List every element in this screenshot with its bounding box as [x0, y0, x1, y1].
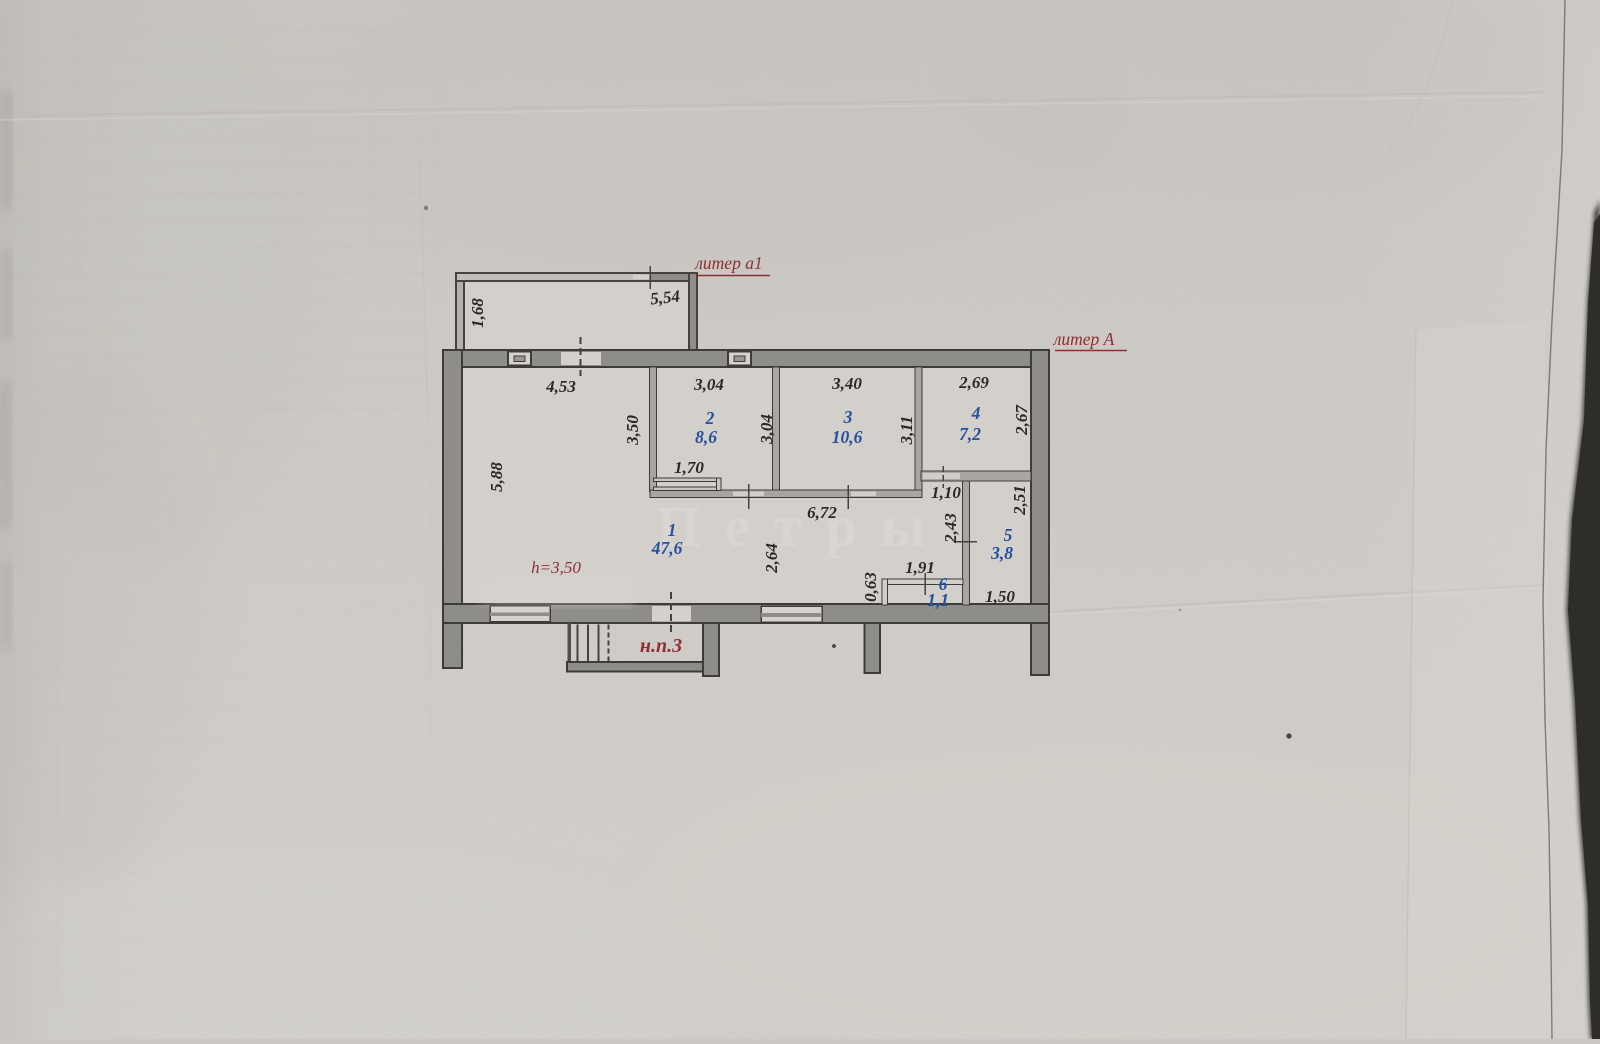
svg-text:h=3,50: h=3,50	[531, 558, 581, 577]
svg-text:2: 2	[705, 408, 715, 428]
svg-text:3,8: 3,8	[990, 543, 1013, 563]
svg-text:1,50: 1,50	[985, 587, 1015, 606]
svg-text:47,6: 47,6	[651, 538, 683, 558]
svg-text:3,04: 3,04	[757, 414, 776, 445]
svg-text:Петры: Петры	[656, 494, 949, 559]
svg-text:7,2: 7,2	[959, 424, 981, 444]
svg-text:6,72: 6,72	[807, 503, 837, 522]
svg-text:2,67: 2,67	[1012, 404, 1031, 436]
svg-text:3,04: 3,04	[693, 375, 724, 394]
svg-text:3,50: 3,50	[623, 415, 642, 446]
svg-text:5,54: 5,54	[649, 286, 681, 308]
svg-text:1,1: 1,1	[927, 590, 949, 610]
svg-text:4,53: 4,53	[545, 377, 576, 396]
svg-text:2,69: 2,69	[958, 373, 989, 392]
svg-text:1,70: 1,70	[674, 458, 704, 477]
svg-text:н.п.3: н.п.3	[640, 635, 682, 657]
svg-text:литер а1: литер а1	[694, 253, 762, 273]
svg-text:3: 3	[843, 407, 853, 427]
svg-text:2,64: 2,64	[762, 543, 781, 574]
svg-text:1,68: 1,68	[468, 298, 487, 328]
svg-text:5,88: 5,88	[487, 462, 506, 492]
svg-text:литер А: литер А	[1053, 329, 1115, 349]
svg-text:3,11: 3,11	[897, 416, 916, 446]
svg-text:0,63: 0,63	[861, 572, 880, 602]
svg-text:4: 4	[971, 403, 981, 423]
svg-text:8,6: 8,6	[695, 427, 717, 447]
svg-text:10,6: 10,6	[832, 427, 863, 447]
svg-text:3,40: 3,40	[831, 374, 862, 393]
svg-text:2,43: 2,43	[941, 513, 960, 544]
svg-text:5: 5	[1004, 525, 1013, 545]
svg-text:1,10: 1,10	[931, 483, 961, 502]
svg-text:1: 1	[668, 520, 677, 540]
svg-text:2,51: 2,51	[1010, 485, 1029, 516]
svg-text:1,91: 1,91	[905, 558, 935, 577]
